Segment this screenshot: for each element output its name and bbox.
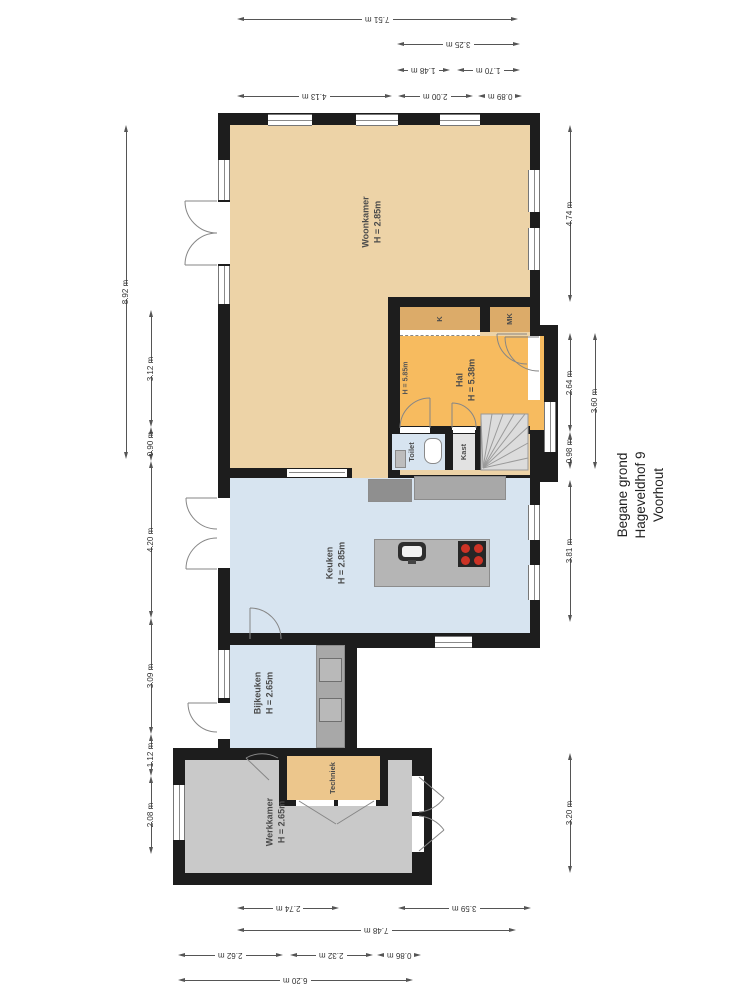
dimension-left-3: 0.90 m: [146, 427, 156, 461]
plan-title: Begane grond Hageveldhof 9 Voorhout: [614, 415, 668, 575]
dimension-bottom-5: 2.32 m: [290, 950, 373, 960]
dimension-left-7: 2.08 m: [146, 776, 156, 854]
dimension-right-4: 3.60 m: [590, 333, 600, 469]
door-arc: [505, 337, 539, 371]
dimension-left-6: 1.12 m: [146, 734, 156, 776]
label-werkkamer: WerkkamerH = 2.65m: [264, 798, 287, 846]
dimension-left-1: 8.92 m: [121, 125, 131, 459]
dimension-right-5: 3.81 m: [565, 480, 575, 622]
label-toilet: Toilet: [407, 442, 417, 461]
dimension-right-6: 3.20 m: [565, 753, 575, 873]
label-keuken: KeukenH = 2.85m: [324, 542, 347, 584]
dimension-left-5: 3.09 m: [146, 618, 156, 734]
dimension-bottom-7: 6.20 m: [178, 975, 413, 985]
dimension-top-5: 4.13 m: [237, 91, 392, 101]
label-woonkamer: WoonkamerH = 2.85m: [360, 196, 383, 247]
door-arc: [250, 608, 281, 639]
door-arc: [246, 754, 278, 780]
label-techniek: Techniek: [328, 762, 338, 794]
dimension-right-1: 4.74 m: [565, 125, 575, 302]
door-arc: [185, 233, 217, 265]
door-arc: [419, 816, 444, 851]
label-hal-note: H = 5.85m: [401, 362, 410, 395]
dimension-top-3: 1.48 m: [397, 65, 450, 75]
dimension-left-2: 3.12 m: [146, 310, 156, 427]
dimension-bottom-1: 2.74 m: [237, 903, 339, 913]
label-hal: HalH = 5.38m: [454, 359, 477, 401]
door-arc: [186, 498, 217, 529]
dimension-bottom-3: 7.48 m: [237, 925, 516, 935]
dimension-left-4: 4.20 m: [146, 461, 156, 618]
label-meterkast: MK: [505, 313, 515, 325]
dimension-top-1: 7.51 m: [237, 14, 518, 24]
stairs: [481, 414, 528, 470]
dimension-top-4: 1.70 m: [457, 65, 520, 75]
dimension-right-2: 2.64 m: [565, 333, 575, 432]
door-arc: [186, 538, 217, 569]
title-address: Hageveldhof 9: [632, 415, 650, 575]
dimension-top-6: 2.00 m: [398, 91, 473, 101]
title-city: Voorhout: [650, 415, 668, 575]
dimension-bottom-6: 0.86 m: [377, 950, 413, 960]
door-arc: [185, 201, 217, 233]
dimension-bottom-4: 2.62 m: [178, 950, 283, 960]
dimension-top-2: 3.25 m: [397, 39, 520, 49]
door-arc: [419, 777, 444, 812]
door-leaf: [299, 801, 374, 824]
label-kast: Kast: [459, 444, 469, 460]
door-arc: [497, 334, 527, 364]
dimension-top-7: 0.89 m: [478, 91, 522, 101]
door-arc: [400, 398, 430, 428]
dimension-bottom-2: 3.59 m: [398, 903, 531, 913]
door-arc: [452, 403, 476, 428]
floorplan-page: WoonkamerH = 2.85m HalH = 5.38m H = 5.85…: [0, 0, 734, 1000]
label-bijkeuken: BijkeukenH = 2.65m: [252, 672, 275, 715]
title-floor: Begane grond: [614, 415, 632, 575]
dimension-right-3: 0.98 m: [565, 432, 575, 469]
door-arc: [188, 703, 217, 732]
label-closet-k: K: [435, 316, 445, 321]
